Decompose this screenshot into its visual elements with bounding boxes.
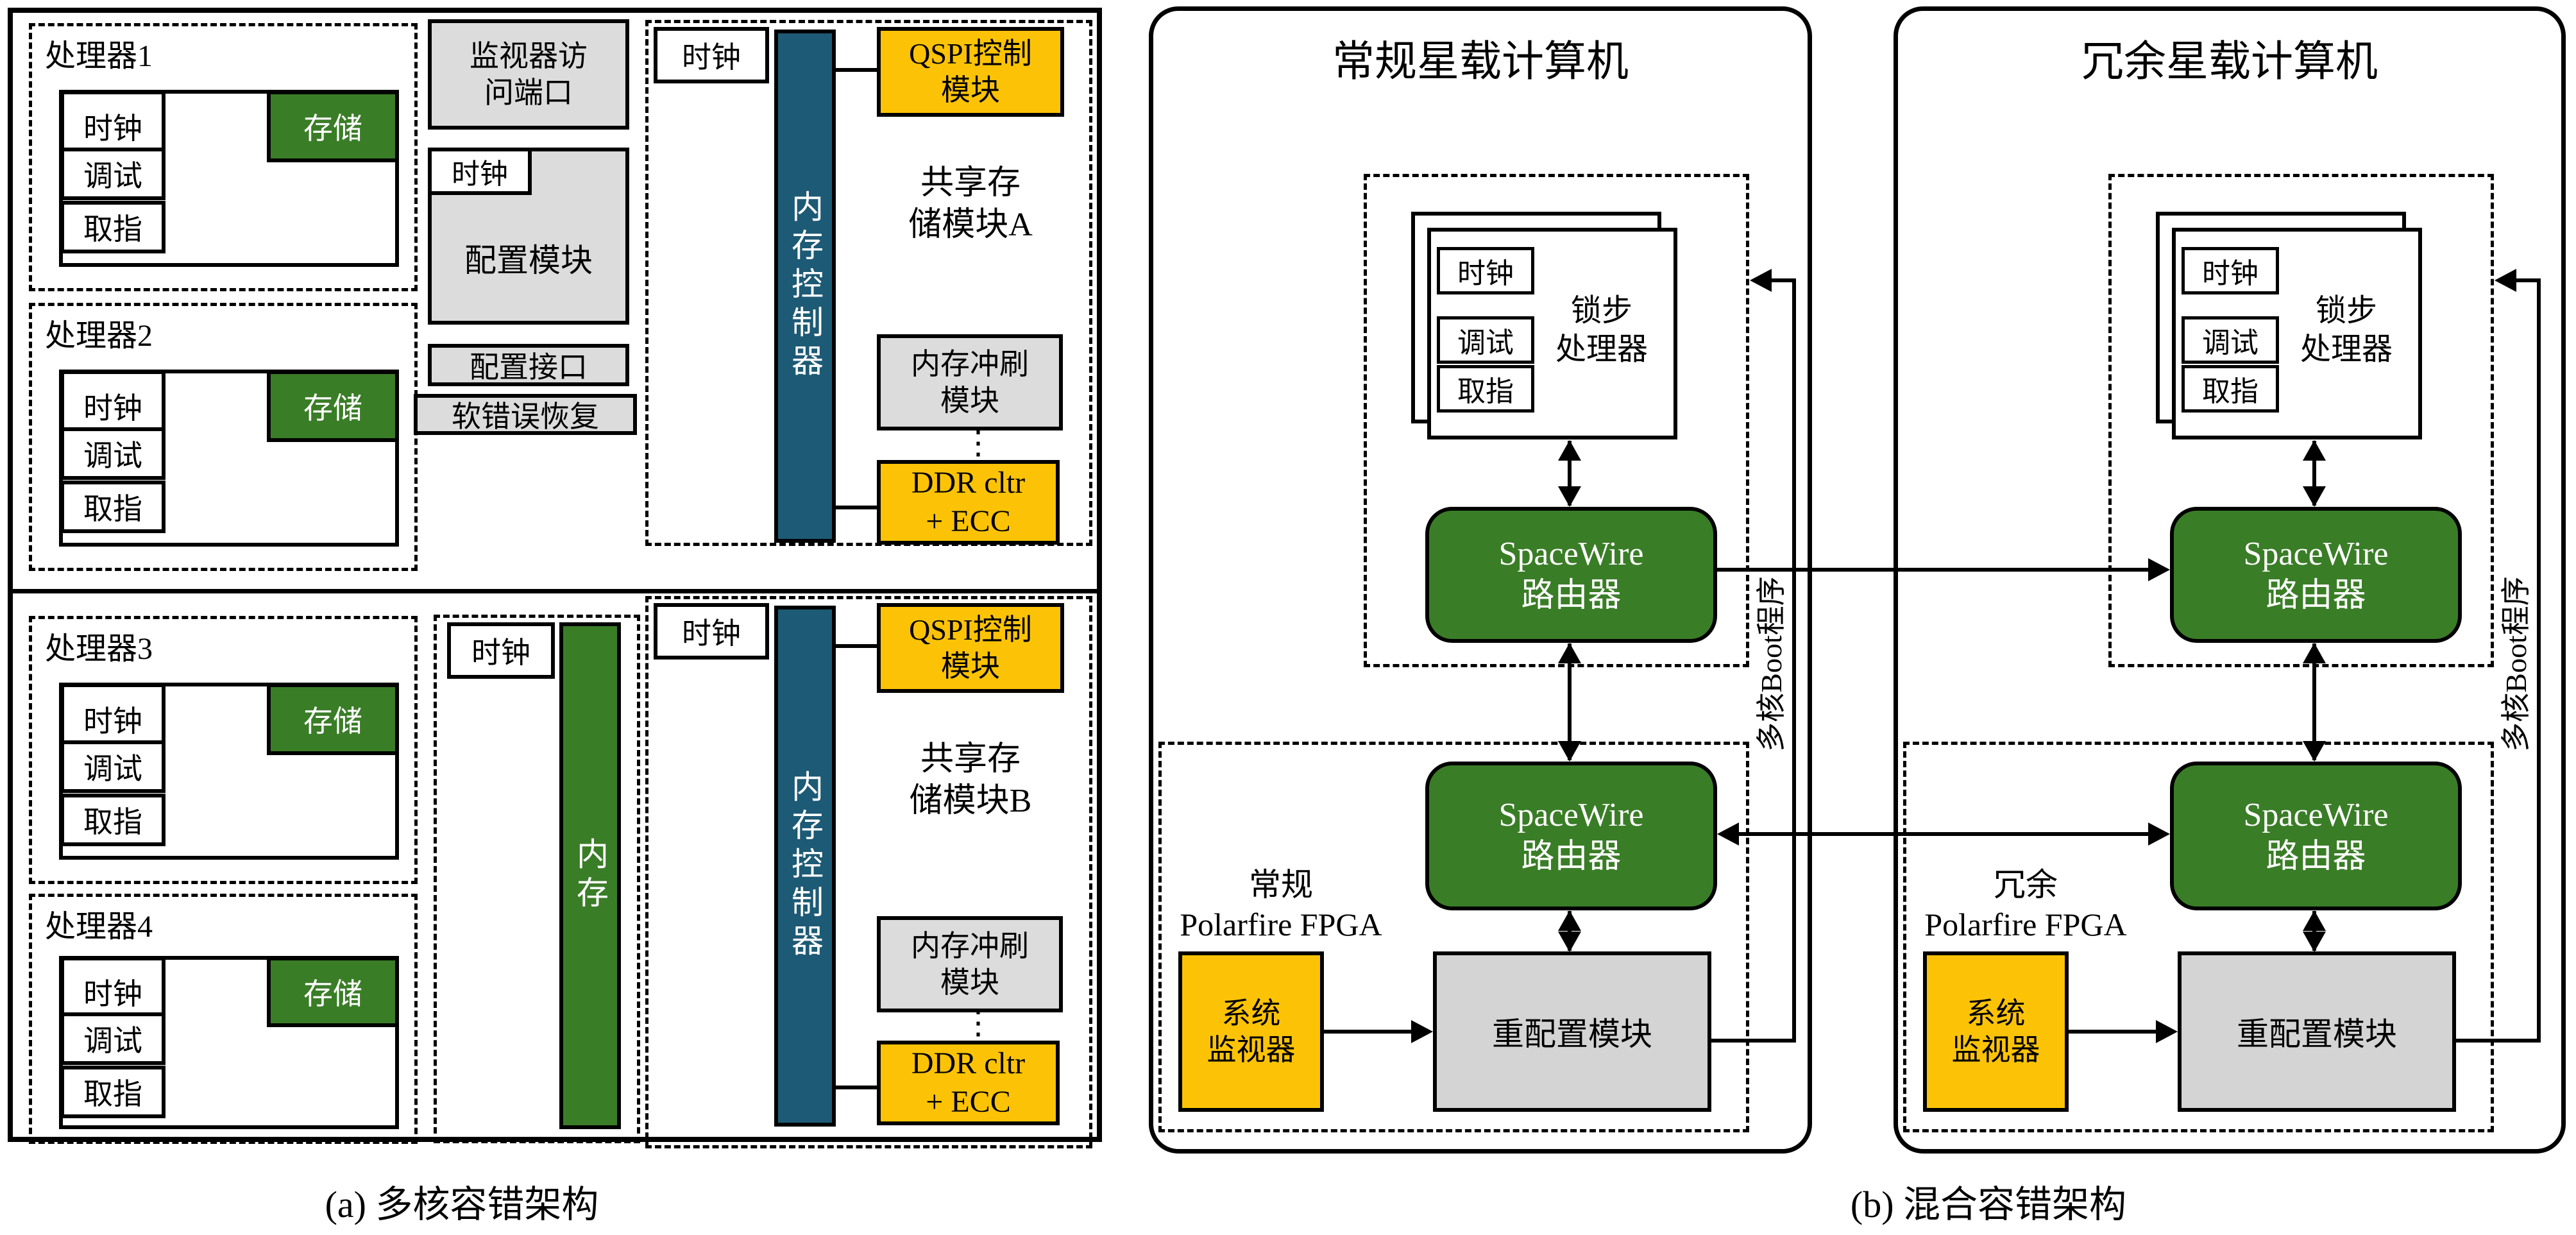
arrow-right-icon: [2148, 822, 2170, 846]
regular-fpga-label: 常规 Polarfire FPGA: [1162, 863, 1400, 946]
redundant-boot-line-bottom: [2456, 1039, 2539, 1043]
regular-router-bottom: SpaceWire 路由器: [1425, 762, 1717, 910]
config-clock-box: 时钟: [428, 148, 532, 195]
regular-system-monitor-box: 系统 监视器: [1178, 951, 1324, 1112]
arrow-right-icon: [1411, 1020, 1433, 1043]
regular-router-top: SpaceWire 路由器: [1425, 507, 1717, 643]
cross-link-bottom: [1737, 832, 2150, 836]
processor-2-box: 处理器2 时钟 存储 调试 取指: [29, 303, 418, 571]
processor-4-box: 处理器4 时钟 存储 调试 取指: [29, 894, 418, 1144]
memory-bar-label: 内存: [567, 837, 613, 914]
module-a-dots: ⋮: [959, 425, 997, 461]
module-a-memory-controller-label: 内存控制器: [782, 190, 828, 382]
processor-3-mem-box: 存储: [267, 683, 399, 755]
redundant-boot-line-vertical: [2537, 280, 2541, 1043]
module-a-clock-box: 时钟: [654, 27, 769, 83]
arrow-right-icon: [2156, 1020, 2178, 1043]
processor-2-fetch-box: 取指: [60, 481, 165, 533]
arrow-down-icon: [2303, 486, 2326, 507]
redundant-boot-label: 多核Boot程序: [2498, 529, 2530, 799]
arrow-left-icon: [1750, 269, 1772, 292]
arrow-down-icon: [1558, 486, 1581, 507]
module-b-ddr-box: DDR cltr + ECC: [877, 1041, 1060, 1125]
module-b-memory-controller-label: 内存控制器: [782, 770, 828, 962]
processor-3-box: 处理器3 时钟 存储 调试 取指: [29, 616, 418, 884]
arrow-right-icon: [2148, 558, 2170, 581]
module-b-dots: ⋮: [959, 1005, 997, 1041]
processor-1-title: 处理器1: [45, 30, 153, 75]
module-b-shared-label: 共享存 储模块B: [877, 735, 1064, 825]
regular-lockstep-fetch-box: 取指: [1437, 365, 1534, 413]
module-a-connector-top: [836, 68, 877, 72]
module-b-qspi-box: QSPI控制 模块: [877, 603, 1064, 693]
arrow-up-icon: [1558, 910, 1581, 931]
processor-3-fetch-box: 取指: [60, 794, 165, 846]
module-a-qspi-box: QSPI控制 模块: [877, 27, 1064, 117]
processor-2-debug-box: 调试: [60, 427, 165, 480]
processor-1-fetch-box: 取指: [60, 201, 165, 253]
arrow-up-icon: [2303, 440, 2326, 461]
regular-lockstep-clock-box: 时钟: [1437, 247, 1534, 294]
module-a-flush-box: 内存冲刷 模块: [877, 334, 1063, 430]
regular-arrow-monitor-reconfig: [1324, 1030, 1414, 1034]
figure-canvas: 处理器1 时钟 存储 调试 取指 处理器2 时钟 存储 调试 取指 处理器3 时…: [0, 0, 2576, 1235]
redundant-fpga-label: 冗余 Polarfire FPGA: [1907, 863, 2144, 946]
module-b-clock-box: 时钟: [654, 603, 769, 660]
arrow-up-icon: [1558, 643, 1581, 663]
regular-boot-line-bottom: [1711, 1039, 1795, 1043]
regular-computer-title: 常规星载计算机: [1149, 31, 1812, 85]
processor-4-title: 处理器4: [45, 901, 153, 946]
regular-lockstep-label: 锁步 处理器: [1534, 276, 1669, 385]
processor-4-debug-box: 调试: [60, 1012, 165, 1065]
processor-1-box: 处理器1 时钟 存储 调试 取指: [29, 23, 418, 291]
redundant-system-monitor-box: 系统 监视器: [1923, 951, 2069, 1112]
monitor-access-port-box: 监视器访 问端口: [428, 19, 629, 130]
regular-boot-line-vertical: [1792, 280, 1796, 1043]
redundant-lockstep-clock-box: 时钟: [2182, 247, 2279, 294]
cross-link-top: [1717, 568, 2150, 572]
processor-1-mem-box: 存储: [267, 90, 399, 162]
regular-boot-line-top: [1768, 278, 1796, 282]
redundant-arrow-monitor-reconfig: [2069, 1030, 2158, 1034]
redundant-lockstep-label: 锁步 处理器: [2279, 276, 2414, 385]
redundant-reconfig-box: 重配置模块: [2178, 951, 2456, 1112]
module-b-connector-top: [836, 644, 877, 648]
module-b-connector-bottom: [836, 1086, 877, 1089]
redundant-lockstep-debug-box: 调试: [2182, 316, 2279, 364]
arrow-up-icon: [2303, 643, 2326, 663]
soft-error-recovery-box: 软错误恢复: [414, 394, 637, 435]
arrow-down-icon: [1558, 932, 1581, 952]
module-a-shared-label: 共享存 储模块A: [877, 159, 1064, 249]
config-module-label: 配置模块: [428, 239, 629, 277]
arrow-down-icon: [2303, 932, 2326, 952]
redundant-router-bottom: SpaceWire 路由器: [2170, 762, 2462, 910]
arrow-left-icon: [2495, 269, 2516, 292]
module-a-connector-bottom: [836, 506, 877, 509]
module-a-memory-controller-bar: 内存控制器: [774, 30, 836, 543]
redundant-computer-title: 冗余星载计算机: [1894, 31, 2566, 85]
processor-2-mem-box: 存储: [267, 370, 399, 442]
processor-1-debug-box: 调试: [60, 148, 165, 200]
redundant-router-top: SpaceWire 路由器: [2170, 507, 2462, 643]
memory-bar: 内存: [559, 622, 621, 1129]
processor-2-title: 处理器2: [45, 310, 153, 355]
memory-clock-box: 时钟: [447, 622, 555, 679]
caption-a: (a) 多核容错架构: [180, 1175, 744, 1227]
regular-reconfig-box: 重配置模块: [1433, 951, 1711, 1112]
arrow-up-icon: [1558, 440, 1581, 461]
processor-3-title: 处理器3: [45, 623, 153, 668]
panel-a-divider: [8, 589, 1102, 593]
caption-b: (b) 混合容错架构: [1706, 1175, 2271, 1227]
redundant-lockstep-fetch-box: 取指: [2182, 365, 2279, 413]
processor-4-fetch-box: 取指: [60, 1066, 165, 1118]
module-b-memory-controller-bar: 内存控制器: [774, 606, 836, 1127]
regular-lockstep-debug-box: 调试: [1437, 316, 1534, 364]
arrow-left-icon: [1717, 822, 1739, 846]
processor-4-mem-box: 存储: [267, 957, 399, 1027]
processor-3-debug-box: 调试: [60, 740, 165, 793]
redundant-boot-line-top: [2512, 278, 2541, 282]
module-b-flush-box: 内存冲刷 模块: [877, 916, 1063, 1012]
arrow-up-icon: [2303, 910, 2326, 931]
module-a-ddr-box: DDR cltr + ECC: [877, 460, 1060, 545]
config-interface-box: 配置接口: [428, 344, 629, 386]
